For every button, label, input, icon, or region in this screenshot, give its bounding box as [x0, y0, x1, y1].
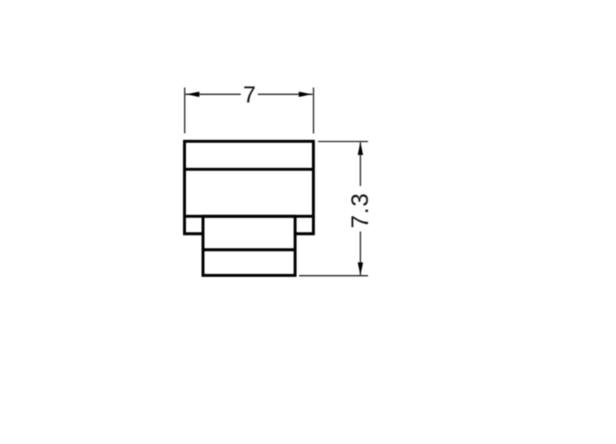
svg-text:7.3: 7.3 [347, 192, 374, 228]
svg-text:7: 7 [243, 81, 256, 107]
